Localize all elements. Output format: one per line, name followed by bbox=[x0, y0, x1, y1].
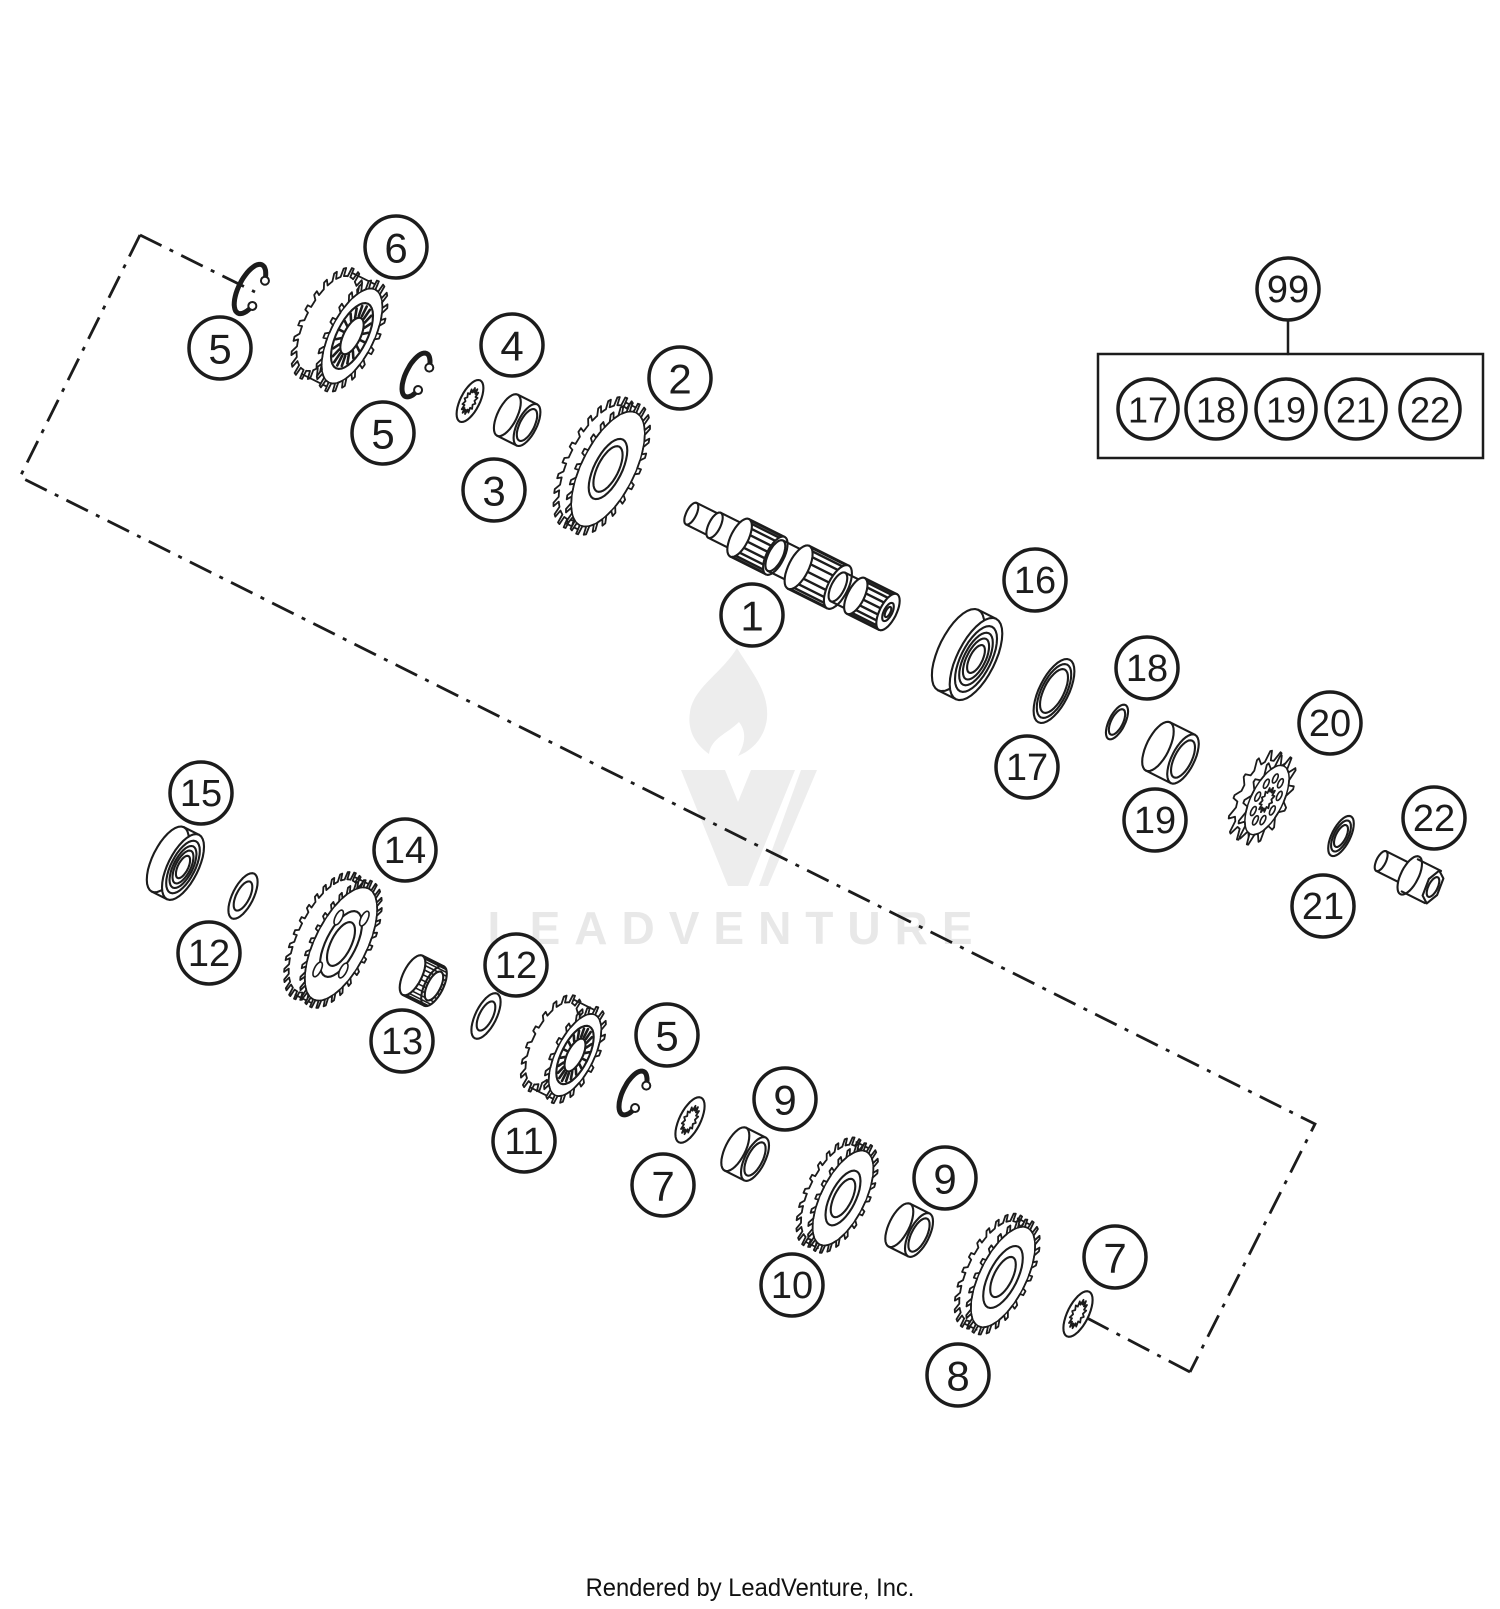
callout-11[interactable]: 11 bbox=[493, 1110, 555, 1172]
svg-text:3: 3 bbox=[482, 468, 505, 515]
gear-11[interactable] bbox=[521, 995, 606, 1103]
svg-text:7: 7 bbox=[651, 1163, 674, 1210]
svg-text:99: 99 bbox=[1267, 269, 1309, 311]
svg-text:5: 5 bbox=[655, 1013, 678, 1060]
callout-4[interactable]: 4 bbox=[481, 314, 543, 376]
callout-21[interactable]: 21 bbox=[1292, 875, 1354, 937]
washer-12a[interactable] bbox=[228, 873, 257, 919]
callout-2[interactable]: 2 bbox=[649, 347, 711, 409]
callout-10[interactable]: 10 bbox=[761, 1254, 823, 1316]
svg-text:9: 9 bbox=[933, 1156, 956, 1203]
bushing-19[interactable] bbox=[1142, 722, 1199, 784]
callout-9[interactable]: 9 bbox=[914, 1147, 976, 1209]
callout-14[interactable]: 14 bbox=[374, 819, 436, 881]
callout-16[interactable]: 16 bbox=[1004, 549, 1066, 611]
gear-8[interactable] bbox=[955, 1214, 1040, 1335]
bolt-22[interactable] bbox=[1375, 851, 1444, 903]
callout-3[interactable]: 3 bbox=[463, 459, 525, 521]
svg-text:2: 2 bbox=[668, 356, 691, 403]
gear-10[interactable] bbox=[796, 1137, 878, 1252]
needle-13[interactable] bbox=[400, 955, 447, 1006]
circlip-5c[interactable] bbox=[619, 1071, 650, 1115]
circlip-5a[interactable] bbox=[234, 264, 269, 313]
svg-text:21: 21 bbox=[1336, 390, 1376, 431]
svg-text:5: 5 bbox=[371, 411, 394, 458]
callout-7[interactable]: 7 bbox=[632, 1154, 694, 1216]
callout-20[interactable]: 20 bbox=[1299, 692, 1361, 754]
callout-22[interactable]: 22 bbox=[1400, 379, 1460, 439]
callout-18[interactable]: 18 bbox=[1186, 379, 1246, 439]
callout-21[interactable]: 21 bbox=[1326, 379, 1386, 439]
svg-text:16: 16 bbox=[1014, 560, 1056, 602]
callout-7[interactable]: 7 bbox=[1084, 1226, 1146, 1288]
bushing-9a[interactable] bbox=[721, 1127, 769, 1181]
svg-text:5: 5 bbox=[208, 326, 231, 373]
svg-text:7: 7 bbox=[1103, 1235, 1126, 1282]
svg-text:17: 17 bbox=[1006, 747, 1048, 789]
svg-text:10: 10 bbox=[771, 1265, 813, 1307]
svg-text:1: 1 bbox=[740, 593, 763, 640]
washer-4[interactable] bbox=[457, 380, 484, 422]
callout-8[interactable]: 8 bbox=[927, 1344, 989, 1406]
svg-text:4: 4 bbox=[500, 323, 523, 370]
dash-dot-line bbox=[1085, 1317, 1190, 1372]
svg-text:18: 18 bbox=[1126, 648, 1168, 690]
sprocket-20[interactable] bbox=[1229, 751, 1296, 845]
svg-text:17: 17 bbox=[1128, 390, 1168, 431]
callout-19[interactable]: 19 bbox=[1256, 379, 1316, 439]
callout-22[interactable]: 22 bbox=[1403, 787, 1465, 849]
gear-14[interactable] bbox=[284, 872, 382, 1008]
callout-17[interactable]: 17 bbox=[996, 736, 1058, 798]
svg-text:19: 19 bbox=[1266, 390, 1306, 431]
callout-9[interactable]: 9 bbox=[754, 1068, 816, 1130]
svg-text:14: 14 bbox=[384, 830, 426, 872]
svg-text:13: 13 bbox=[381, 1021, 423, 1063]
bushing-9b[interactable] bbox=[885, 1203, 933, 1257]
svg-text:12: 12 bbox=[495, 945, 537, 987]
washer-21[interactable] bbox=[1328, 816, 1354, 856]
gear-2[interactable] bbox=[554, 397, 651, 535]
callout-12[interactable]: 12 bbox=[178, 922, 240, 984]
callout-5[interactable]: 5 bbox=[636, 1004, 698, 1066]
svg-text:9: 9 bbox=[773, 1077, 796, 1124]
callout-12[interactable]: 12 bbox=[485, 934, 547, 996]
diagram-svg: 5654321161718192022211512141312115791098… bbox=[0, 0, 1500, 1609]
oring-18[interactable] bbox=[1106, 705, 1128, 740]
svg-text:19: 19 bbox=[1134, 800, 1176, 842]
svg-text:12: 12 bbox=[188, 933, 230, 975]
callout-1[interactable]: 1 bbox=[721, 584, 783, 646]
parts-diagram-page: LEADVENTURE 5654321161718192022211512141… bbox=[0, 0, 1500, 1609]
callout-6[interactable]: 6 bbox=[365, 216, 427, 278]
bushing-3[interactable] bbox=[494, 394, 541, 446]
bearing-15[interactable] bbox=[147, 827, 204, 900]
svg-text:22: 22 bbox=[1410, 390, 1450, 431]
washer-7a[interactable] bbox=[675, 1097, 704, 1143]
callout-5[interactable]: 5 bbox=[189, 317, 251, 379]
seal-17[interactable] bbox=[1034, 659, 1075, 723]
callout-99[interactable]: 99 bbox=[1257, 258, 1319, 320]
washer-7b[interactable] bbox=[1063, 1291, 1092, 1337]
callout-18[interactable]: 18 bbox=[1116, 637, 1178, 699]
callout-13[interactable]: 13 bbox=[371, 1010, 433, 1072]
svg-text:20: 20 bbox=[1309, 703, 1351, 745]
svg-text:6: 6 bbox=[384, 225, 407, 272]
parts bbox=[147, 264, 1444, 1336]
kit-group: 991718192122 bbox=[1098, 258, 1483, 458]
callout-17[interactable]: 17 bbox=[1118, 379, 1178, 439]
svg-text:18: 18 bbox=[1196, 390, 1236, 431]
shaft-1[interactable] bbox=[684, 503, 899, 631]
callout-15[interactable]: 15 bbox=[170, 762, 232, 824]
svg-text:15: 15 bbox=[180, 773, 222, 815]
svg-text:11: 11 bbox=[504, 1121, 543, 1163]
callout-5[interactable]: 5 bbox=[352, 402, 414, 464]
bearing-16[interactable] bbox=[932, 609, 1002, 700]
svg-text:8: 8 bbox=[946, 1353, 969, 1400]
washer-12b[interactable] bbox=[471, 993, 500, 1039]
circlip-5b[interactable] bbox=[402, 353, 433, 397]
svg-text:22: 22 bbox=[1413, 798, 1455, 840]
svg-text:21: 21 bbox=[1302, 886, 1344, 928]
gear-6[interactable] bbox=[291, 268, 387, 392]
footer-credit: Rendered by LeadVenture, Inc. bbox=[586, 1574, 915, 1603]
callout-19[interactable]: 19 bbox=[1124, 789, 1186, 851]
